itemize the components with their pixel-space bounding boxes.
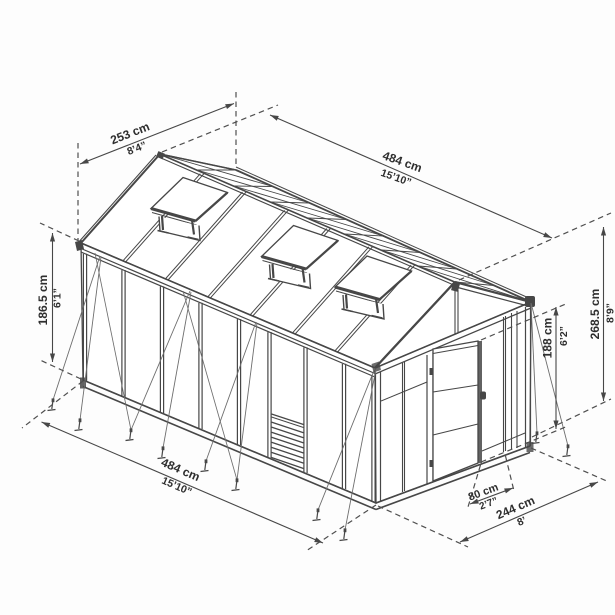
svg-text:268.5 cm: 268.5 cm <box>588 289 602 340</box>
svg-text:8’9”: 8’9” <box>605 303 615 323</box>
svg-text:188 cm: 188 cm <box>541 318 555 359</box>
svg-text:186.5 cm: 186.5 cm <box>36 275 50 326</box>
svg-text:6’2”: 6’2” <box>558 326 570 346</box>
svg-text:6’1”: 6’1” <box>52 288 64 308</box>
